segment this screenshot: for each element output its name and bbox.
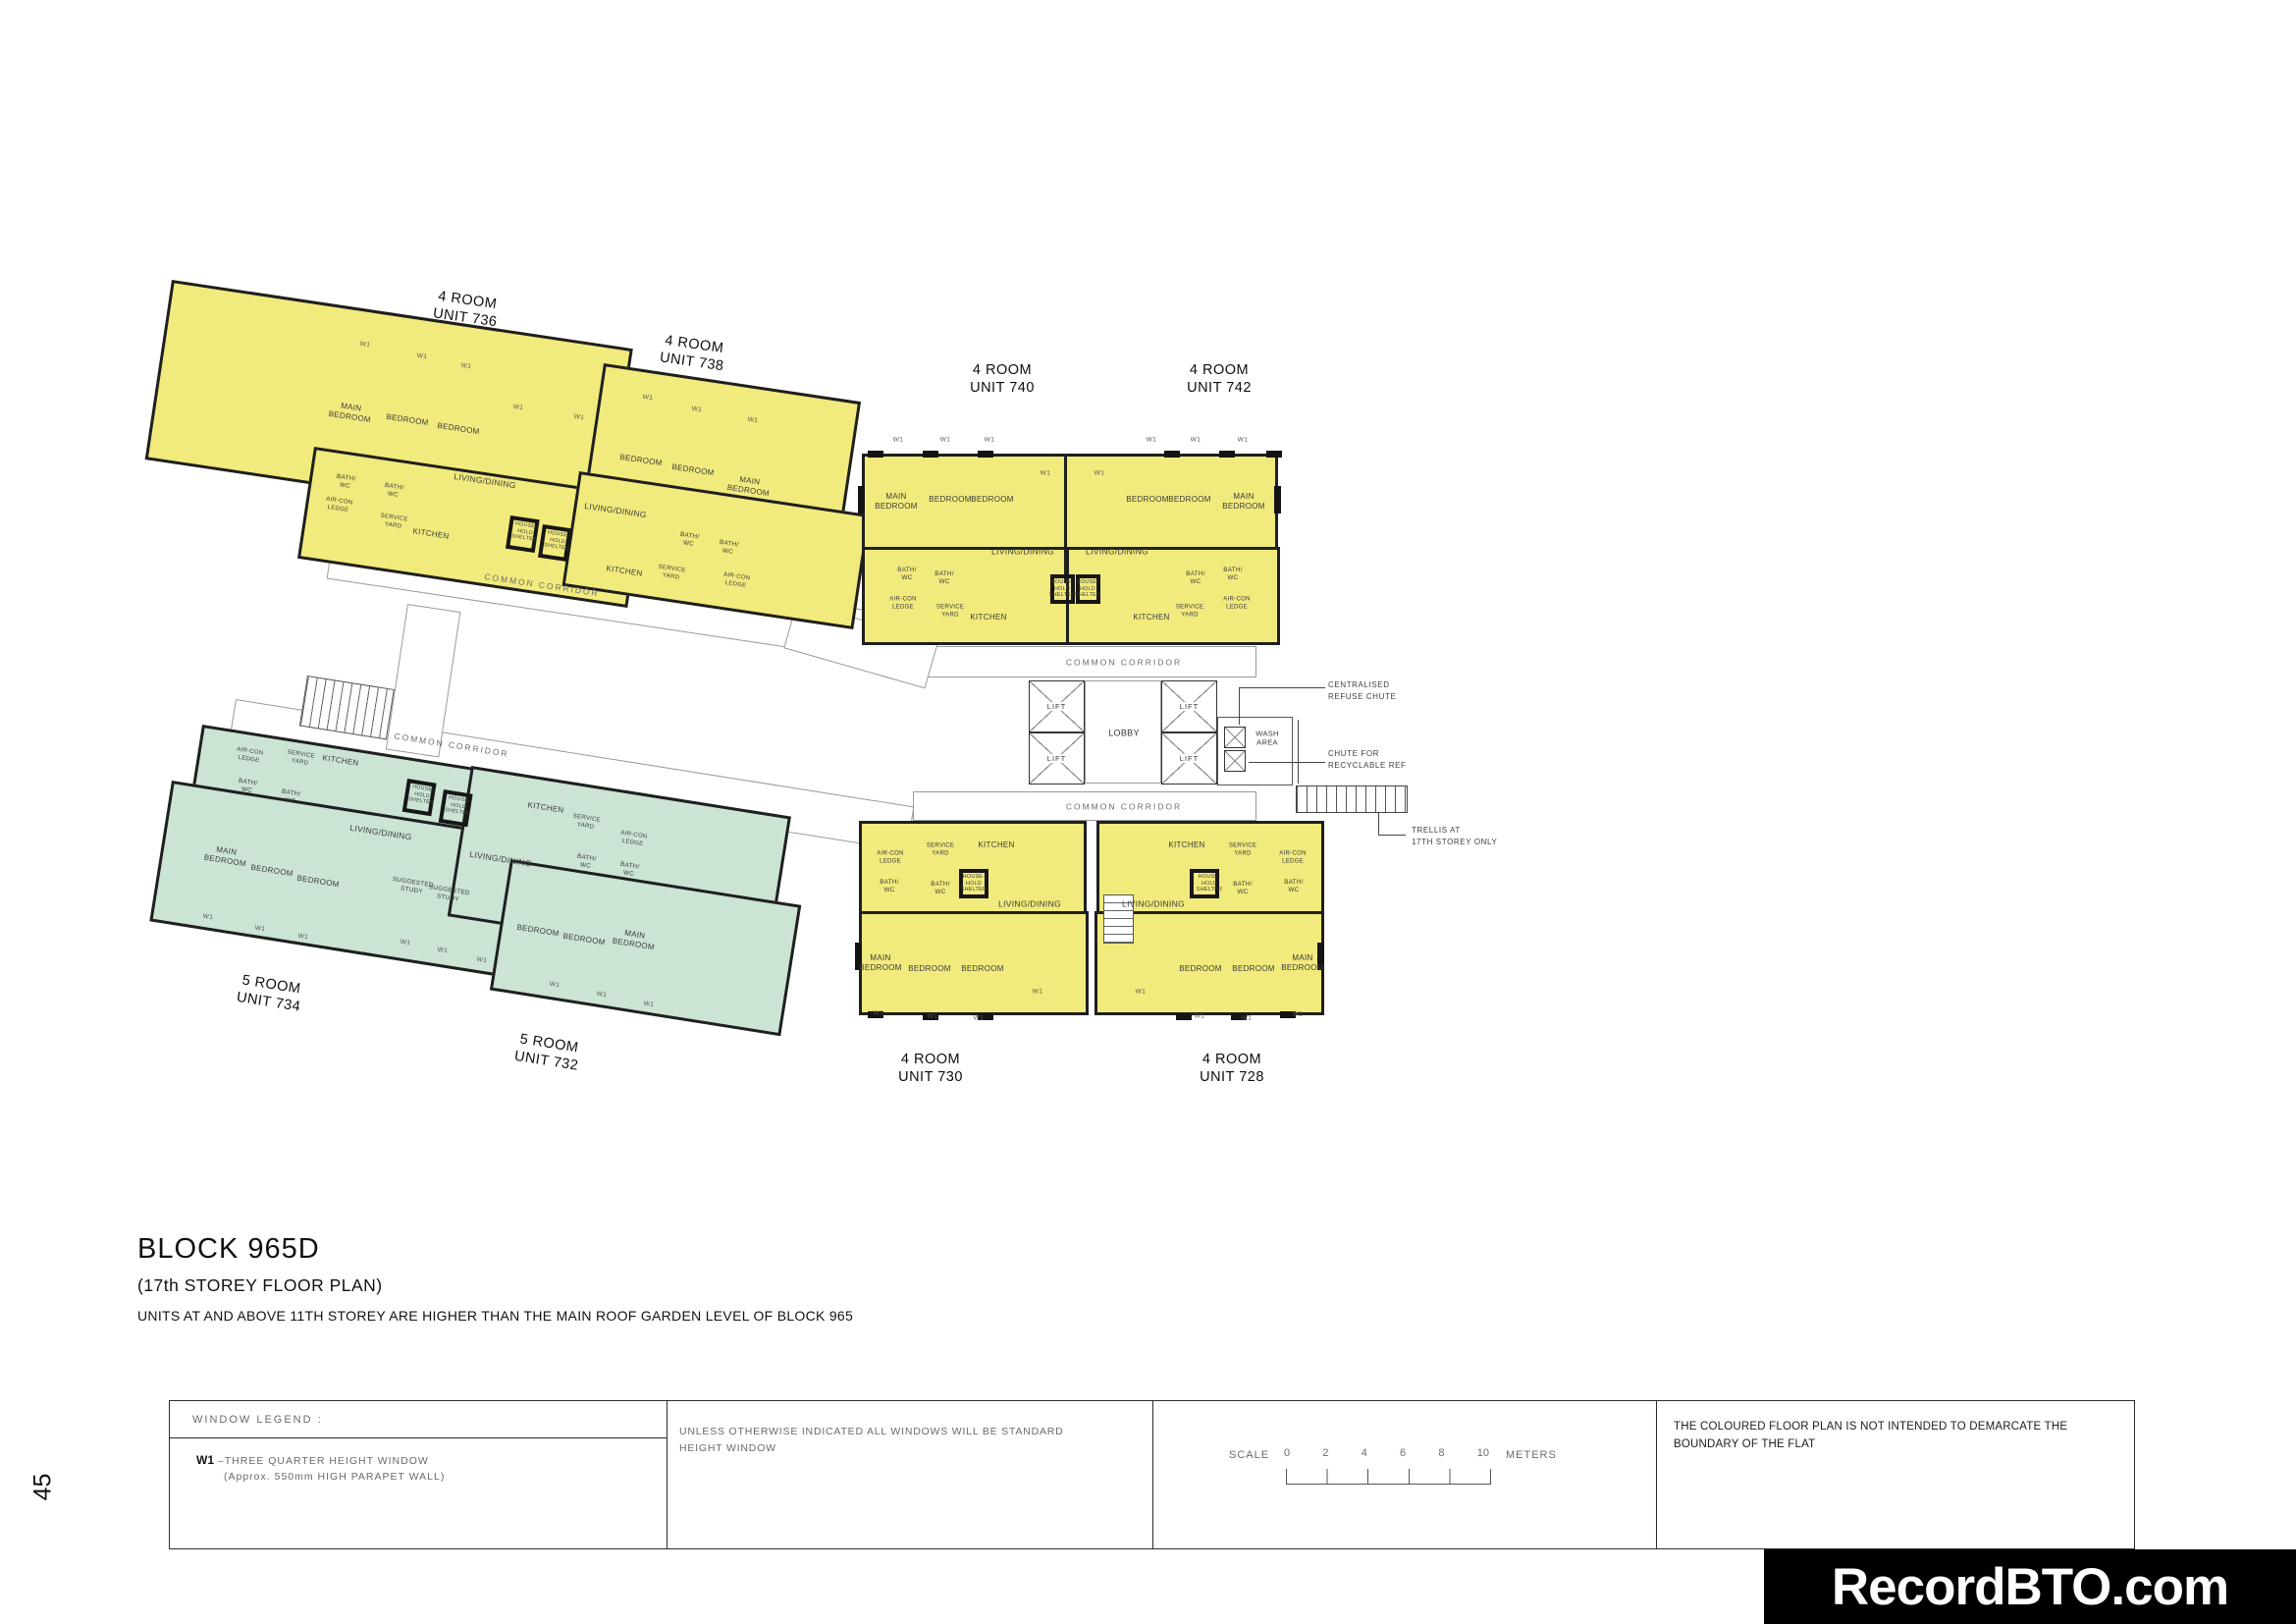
room-label: LIVING/DINING xyxy=(1086,547,1148,558)
leader-line xyxy=(1298,720,1299,784)
unit-label: 4 ROOM UNIT 730 xyxy=(898,1051,963,1086)
legend-divider-1 xyxy=(667,1400,667,1549)
window-w1-label: W1 xyxy=(642,394,654,403)
storey-note: UNITS AT AND ABOVE 11TH STOREY ARE HIGHE… xyxy=(137,1308,853,1324)
window-w1-label: W1 xyxy=(940,437,951,444)
lift-box: LIFT xyxy=(1029,732,1085,785)
window-w1-label: W1 xyxy=(893,437,904,444)
room-label: HOUSE- HOLD SHELTER xyxy=(544,529,572,552)
window-w1-label: W1 xyxy=(202,913,214,922)
scale-tick: 8 xyxy=(1438,1447,1444,1459)
room-label: LIVING/DINING xyxy=(1122,899,1185,910)
room-label: BATH/ WC xyxy=(880,879,899,894)
room-label: LIVING/DINING xyxy=(998,899,1061,910)
lift-label: LIFT xyxy=(1045,754,1068,763)
floor-plan: LIFTLIFTLIFTLIFTMAIN BEDROOMMAIN BEDROOM… xyxy=(0,0,2296,1624)
room-label: BATH/ WC xyxy=(897,567,917,582)
leader-line xyxy=(1239,687,1325,688)
room-label: BATH/ WC xyxy=(1233,881,1253,896)
window-w1-label: W1 xyxy=(643,1001,655,1009)
room-label: AIR-CON LEDGE xyxy=(877,851,903,866)
room-label: WASH AREA xyxy=(1255,730,1278,748)
wall-segment xyxy=(1274,486,1281,514)
room-label: BATH/ WC xyxy=(237,778,258,796)
room-label: BEDROOM xyxy=(1126,495,1168,505)
room-label: SERVICE YARD xyxy=(1176,605,1203,620)
title-block: BLOCK 965D (17th STOREY FLOOR PLAN) UNIT… xyxy=(137,1233,853,1324)
unit-label: 5 ROOM UNIT 734 xyxy=(236,971,305,1016)
room-label: COMMON CORRIDOR xyxy=(1066,802,1182,813)
room-label: KITCHEN xyxy=(1133,613,1169,623)
scale-tick: 10 xyxy=(1477,1447,1489,1459)
window-w1-label: W1 xyxy=(874,1010,884,1017)
windows-note: UNLESS OTHERWISE INDICATED ALL WINDOWS W… xyxy=(679,1424,1101,1458)
trellis xyxy=(1296,785,1408,813)
wall-segment xyxy=(978,451,993,458)
room-label: BATH/ WC xyxy=(1223,567,1243,582)
wall-segment xyxy=(858,486,865,514)
storey-subtitle: (17th STOREY FLOOR PLAN) xyxy=(137,1275,853,1296)
window-w1-label: W1 xyxy=(1147,437,1157,444)
window-w1-label: W1 xyxy=(596,991,608,1000)
window-w1-label: W1 xyxy=(1238,437,1249,444)
lift-label: LIFT xyxy=(1178,702,1201,711)
scale-tick: 6 xyxy=(1400,1447,1406,1459)
room-label: HOUSE- HOLD SHELTER xyxy=(1075,579,1100,599)
room-label: COMMON CORRIDOR xyxy=(1066,658,1182,669)
room-label: BEDROOM xyxy=(971,495,1013,505)
room-label: BEDROOM xyxy=(1168,495,1210,505)
room-label: AIR-CON LEDGE xyxy=(1279,851,1306,866)
window-w1-label: W1 xyxy=(437,947,449,955)
window-w1-label: W1 xyxy=(1195,1013,1205,1020)
window-w1-label: W1 xyxy=(254,925,266,934)
room-label: MAIN BEDROOM xyxy=(859,953,901,973)
unit-label: 5 ROOM UNIT 732 xyxy=(513,1030,583,1075)
room-label: AIR-CON LEDGE xyxy=(1223,597,1250,612)
unit-label: 4 ROOM UNIT 728 xyxy=(1200,1051,1264,1086)
lift-box: LIFT xyxy=(1161,680,1217,732)
room-label: BATH/ WC xyxy=(1284,879,1304,894)
room-label: MAIN BEDROOM xyxy=(875,492,917,512)
window-w1-label: W1 xyxy=(359,341,371,350)
room-label: BATH/ WC xyxy=(718,539,739,557)
room-label: HOUSE- HOLD SHELTER xyxy=(408,784,437,807)
room-label: SERVICE YARD xyxy=(936,605,964,620)
window-w1-label: W1 xyxy=(1041,470,1051,477)
wall-segment xyxy=(1266,451,1282,458)
leader-line xyxy=(1378,813,1379,835)
window-w1-label: W1 xyxy=(1095,470,1105,477)
window-w1-label: W1 xyxy=(416,352,428,361)
window-w1-label: W1 xyxy=(573,413,585,422)
window-legend-title: WINDOW LEGEND : xyxy=(192,1414,323,1426)
window-w1-label: W1 xyxy=(1136,989,1147,996)
window-w1-label: W1 xyxy=(1191,437,1201,444)
boundary-note: THE COLOURED FLOOR PLAN IS NOT INTENDED … xyxy=(1674,1418,2110,1454)
room-label: MAIN BEDROOM xyxy=(1281,953,1323,973)
scale-tick-numbers: 0246810 xyxy=(1284,1447,1489,1459)
room-label: BATH/ WC xyxy=(1186,570,1205,586)
room-label: BATH/ WC xyxy=(934,570,954,586)
window-w1-label: W1 xyxy=(476,956,488,965)
plan-annotation: CHUTE FOR RECYCLABLE REF xyxy=(1328,748,1407,772)
leader-line xyxy=(1378,835,1406,836)
room-label: HOUSE- HOLD SHELTER xyxy=(445,794,473,818)
window-legend-w1-line: W1 –THREE QUARTER HEIGHT WINDOW xyxy=(196,1453,429,1467)
unit-label: 4 ROOM UNIT 740 xyxy=(970,361,1035,397)
room-label: BEDROOM xyxy=(908,964,950,974)
room-label: KITCHEN xyxy=(978,840,1014,850)
legend-divider-3 xyxy=(1656,1400,1657,1549)
window-w1-label: W1 xyxy=(1242,1015,1253,1022)
plan-annotation: TRELLIS AT 17TH STOREY ONLY xyxy=(1412,825,1497,848)
room-label: LIVING/DINING xyxy=(991,547,1054,558)
room-label: BEDROOM xyxy=(1179,964,1221,974)
room-label: SERVICE YARD xyxy=(927,843,954,858)
w1-code: W1 xyxy=(196,1453,214,1467)
room-label: BATH/ WC xyxy=(383,482,404,500)
lift-label: LIFT xyxy=(1045,702,1068,711)
lift-box: LIFT xyxy=(1029,680,1085,732)
room-label: BATH/ WC xyxy=(335,473,356,491)
room-label: HOUSE- HOLD SHELTER xyxy=(1049,579,1075,599)
room-label: AIR-CON LEDGE xyxy=(889,597,916,612)
window-w1-label: W1 xyxy=(400,939,411,947)
scale-tick: 2 xyxy=(1322,1447,1328,1459)
scale-bar xyxy=(1286,1469,1491,1485)
scale-tick: 0 xyxy=(1284,1447,1290,1459)
room-label: BATH/ WC xyxy=(678,531,700,549)
w1-description: –THREE QUARTER HEIGHT WINDOW xyxy=(218,1455,429,1467)
wall-segment xyxy=(868,451,883,458)
window-w1-label: W1 xyxy=(460,362,472,371)
room-label: BEDROOM xyxy=(929,495,971,505)
watermark-text: RecordBTO.com xyxy=(1832,1557,2228,1617)
refuse-chute-box xyxy=(1224,727,1246,748)
legend-divider-2 xyxy=(1152,1400,1153,1549)
floor-plan-page: LIFTLIFTLIFTLIFTMAIN BEDROOMMAIN BEDROOM… xyxy=(0,0,2296,1624)
room-label: KITCHEN xyxy=(970,613,1006,623)
window-w1-label: W1 xyxy=(747,416,759,425)
scale-label: SCALE xyxy=(1229,1449,1269,1461)
window-w1-label: W1 xyxy=(985,437,995,444)
window-w1-label: W1 xyxy=(691,406,703,414)
room-label: BATH/ WC xyxy=(931,881,950,896)
legend-subdivider xyxy=(169,1437,667,1438)
room-label: HOUSE- HOLD SHELTER xyxy=(1197,874,1222,893)
room-label: MAIN BEDROOM xyxy=(1222,492,1264,512)
unit-label: 4 ROOM UNIT 738 xyxy=(659,331,727,375)
wall-segment xyxy=(923,451,938,458)
wall-segment xyxy=(1219,451,1235,458)
refuse-chute-box xyxy=(1224,750,1246,772)
window-w1-label: W1 xyxy=(297,933,309,942)
lift-label: LIFT xyxy=(1178,754,1201,763)
window-w1-label: W1 xyxy=(928,1013,938,1020)
room-label: HOUSE- HOLD SHELTER xyxy=(511,520,540,543)
room-label: BATH/ WC xyxy=(618,861,640,880)
wall-segment xyxy=(1176,1013,1192,1020)
window-w1-label: W1 xyxy=(549,981,561,990)
unit-label: 4 ROOM UNIT 742 xyxy=(1187,361,1252,397)
page-number: 45 xyxy=(28,1474,57,1501)
w1-description-2: (Approx. 550mm HIGH PARAPET WALL) xyxy=(224,1471,445,1483)
window-w1-label: W1 xyxy=(1033,989,1043,996)
lift-box: LIFT xyxy=(1161,732,1217,785)
room-label: SERVICE YARD xyxy=(1229,843,1256,858)
leader-line xyxy=(1249,762,1325,763)
room-label: BEDROOM xyxy=(1232,964,1274,974)
block-title: BLOCK 965D xyxy=(137,1233,853,1266)
window-w1-label: W1 xyxy=(974,1015,985,1022)
room-label: HOUSE- HOLD SHELTER xyxy=(961,874,987,893)
window-w1-label: W1 xyxy=(512,404,524,412)
window-w1-label: W1 xyxy=(1293,1011,1304,1018)
room-label: BATH/ WC xyxy=(575,853,597,872)
room-label: BATH/ WC xyxy=(280,788,301,807)
scale-unit: METERS xyxy=(1506,1449,1557,1461)
scale-tick: 4 xyxy=(1362,1447,1367,1459)
plan-annotation: CENTRALISED REFUSE CHUTE xyxy=(1328,679,1396,703)
room-label: LOBBY xyxy=(1108,728,1140,738)
room-label: KITCHEN xyxy=(1168,840,1204,850)
leader-line xyxy=(1239,687,1240,725)
watermark-banner: RecordBTO.com xyxy=(1764,1549,2296,1624)
room-label: BEDROOM xyxy=(961,964,1003,974)
wall-segment xyxy=(1164,451,1180,458)
